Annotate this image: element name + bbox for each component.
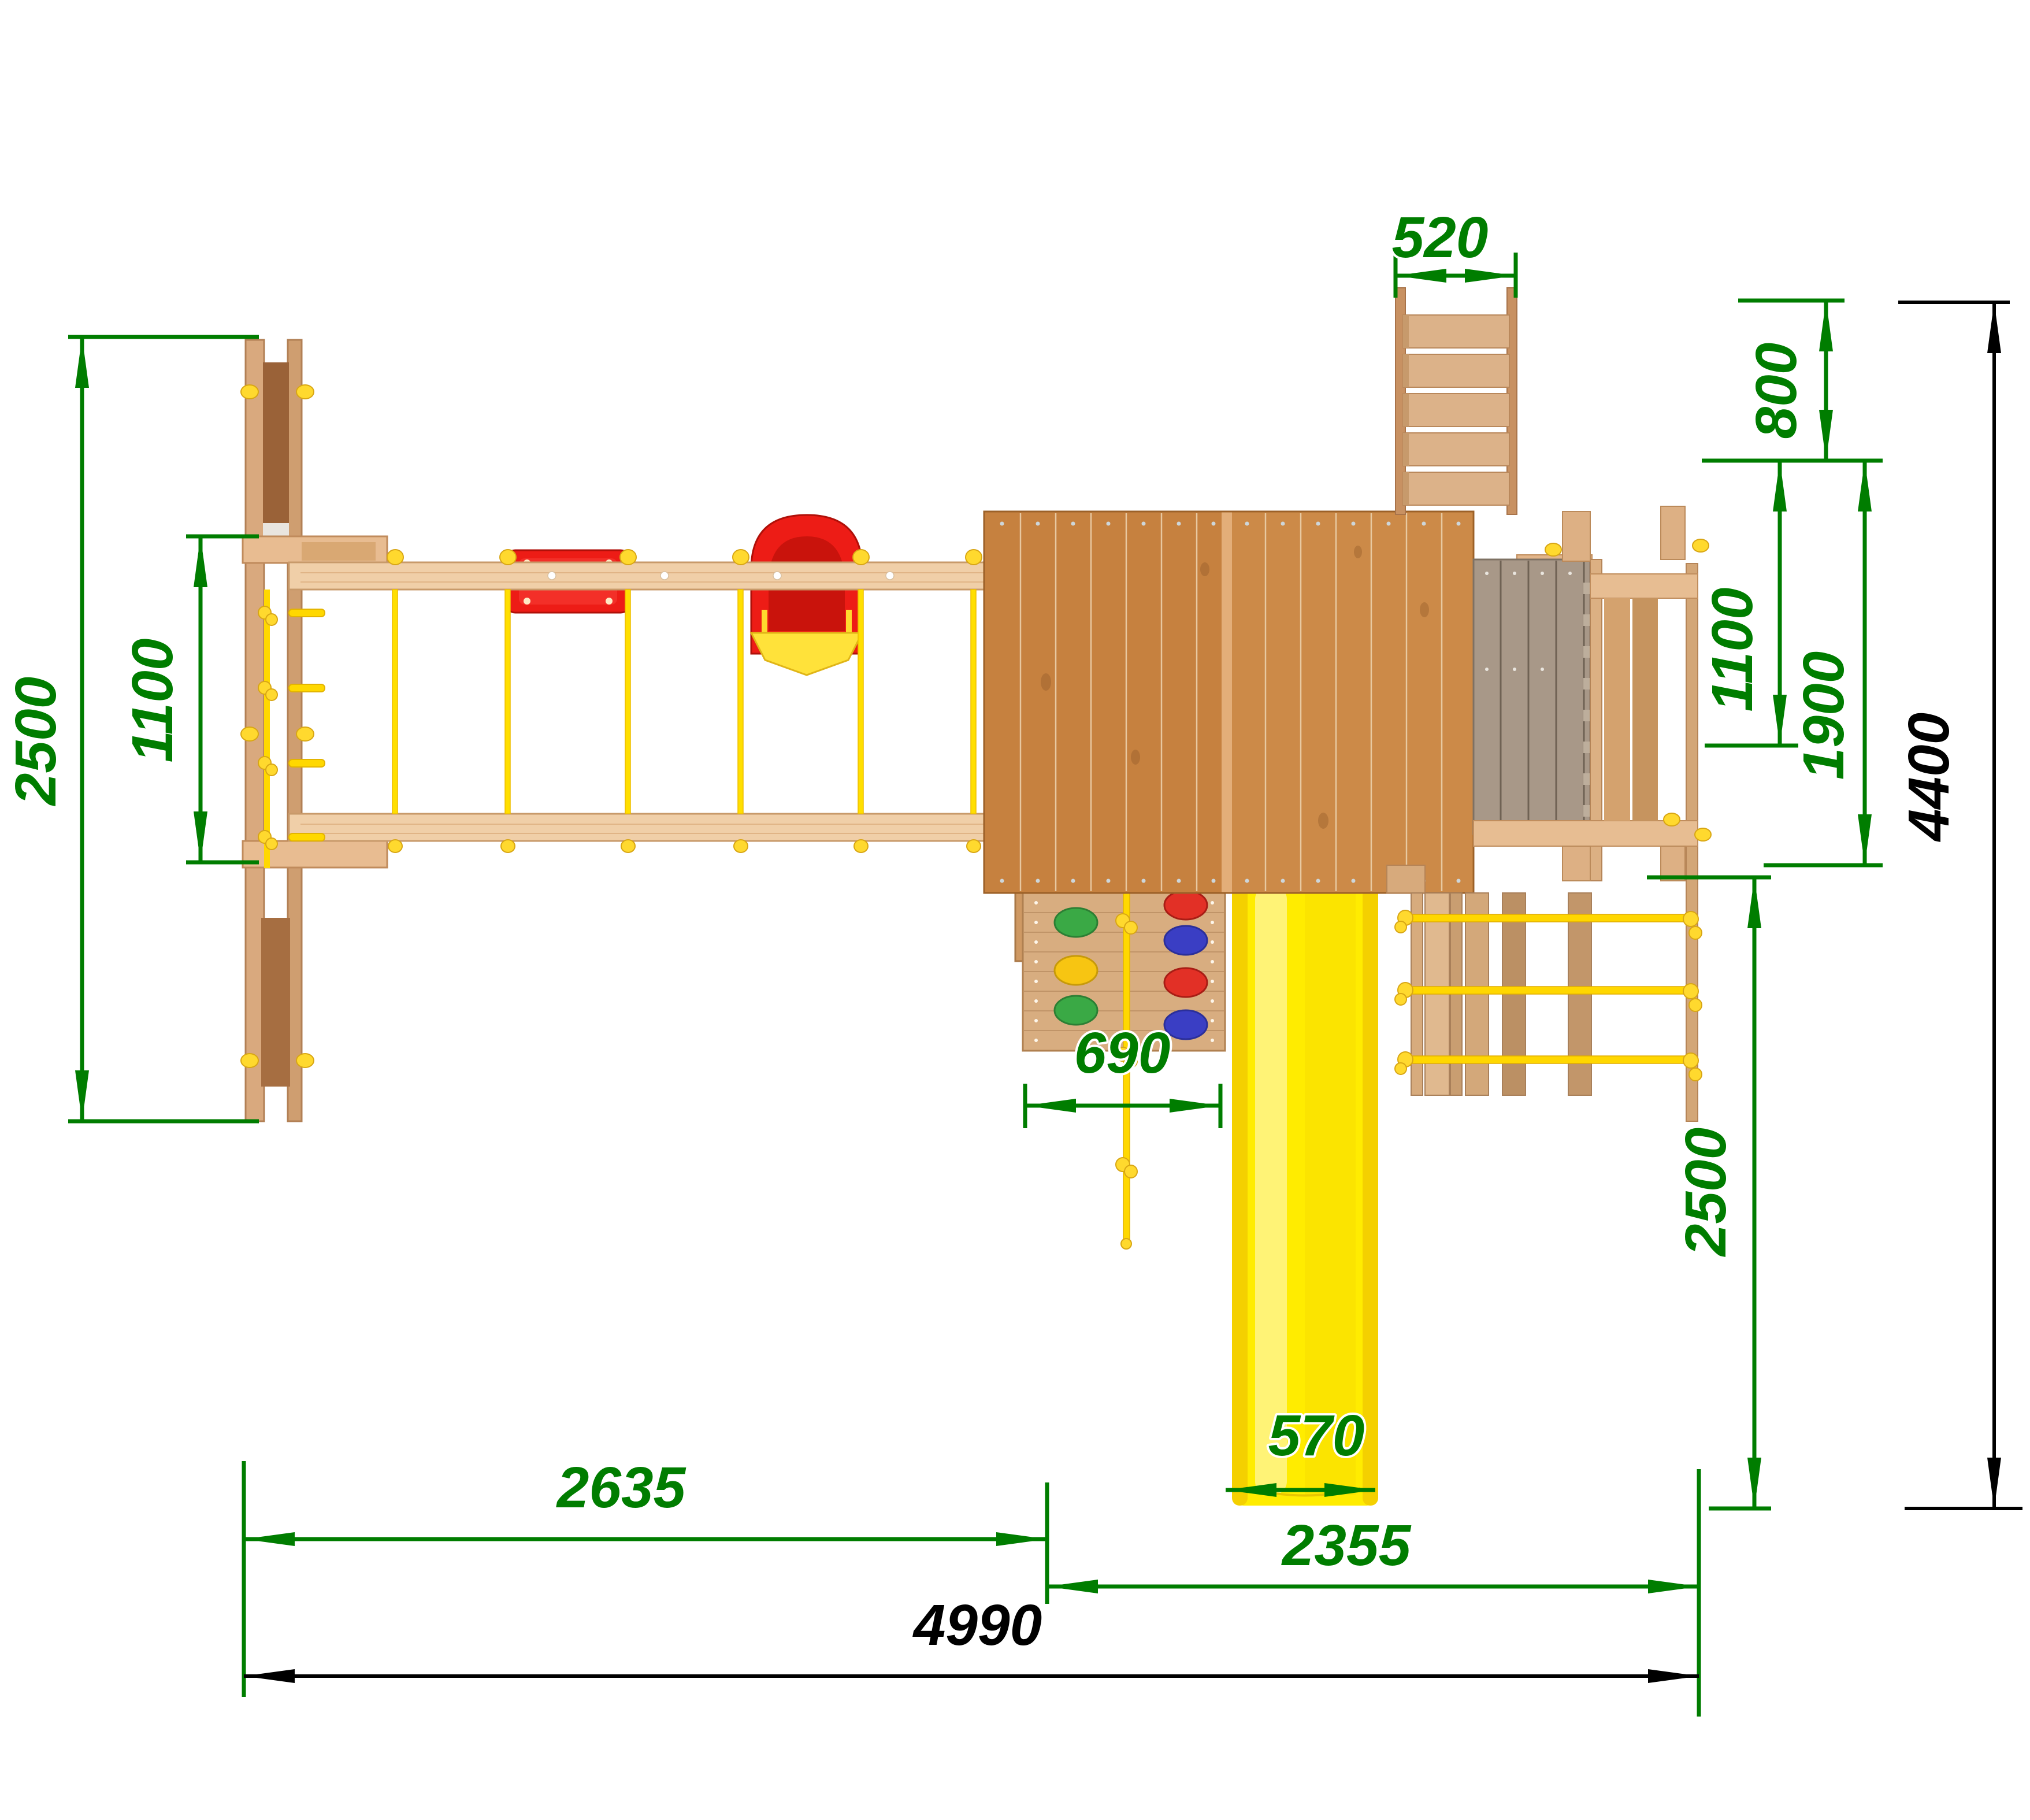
swing-beam-bottom	[289, 814, 1016, 841]
roof	[984, 511, 1474, 893]
dim-2635-swing-span: 2635	[244, 1455, 1047, 1697]
dim-label-520: 520	[1392, 205, 1489, 270]
a-frame-panel-bottom	[261, 918, 290, 1087]
dim-label-2500-right: 2500	[1673, 1128, 1738, 1257]
corner-brace-block	[302, 542, 376, 561]
rope-ladder-right	[1387, 865, 1702, 1095]
structure	[241, 288, 1711, 1506]
dim-label-690: 690	[1074, 1021, 1171, 1085]
dim-label-1100-right: 1100	[1700, 587, 1765, 711]
dim-800-right: 800	[1702, 301, 1883, 461]
dim-label-1900: 1900	[1791, 651, 1856, 780]
slide-rail-right	[1363, 879, 1378, 1506]
swing-a-frame-left	[241, 340, 387, 1121]
dimensions: 520 2500 1100 800 1100 1	[3, 205, 2022, 1717]
a-frame-panel-top	[263, 362, 289, 530]
dim-label-2635: 2635	[556, 1455, 686, 1520]
bridge-deck	[1474, 555, 1592, 834]
dim-1100-right: 1100	[1700, 461, 1798, 746]
tower-post-right-foot	[1387, 865, 1425, 893]
dim-label-2355: 2355	[1281, 1513, 1412, 1578]
roof-ridge	[1222, 511, 1232, 893]
dim-label-570: 570	[1268, 1403, 1365, 1468]
playground-plan-svg: 520 2500 1100 800 1100 1	[0, 0, 2030, 1820]
baby-swing-seat	[751, 515, 862, 675]
dim-label-2500-left: 2500	[3, 677, 68, 806]
slide-rail-left	[1232, 879, 1248, 1506]
dim-label-800: 800	[1744, 343, 1809, 439]
dim-2500-right: 2500	[1647, 877, 1771, 1508]
dim-label-1100-left: 1100	[120, 638, 185, 762]
right-wall-top-rail	[1590, 574, 1698, 598]
right-wall-bottom-rail	[1474, 821, 1698, 846]
dim-4990-overall-width: 4990	[244, 1593, 1699, 1676]
swing-beam-top	[289, 562, 1016, 590]
dim-520-ladder-width: 520	[1392, 205, 1516, 298]
drawing-page: 520 2500 1100 800 1100 1	[0, 0, 2030, 1820]
swing-hanger-caps	[387, 550, 982, 852]
access-ladder	[1396, 288, 1517, 514]
dim-label-4400: 4400	[1897, 713, 1961, 842]
dim-label-4990: 4990	[912, 1593, 1042, 1658]
dim-1100-left: 1100	[120, 536, 259, 862]
dim-4400-overall-height: 4400	[1897, 302, 2022, 1508]
swing-ropes	[387, 550, 982, 852]
dim-2355-tower-span: 2355	[1047, 1469, 1699, 1717]
